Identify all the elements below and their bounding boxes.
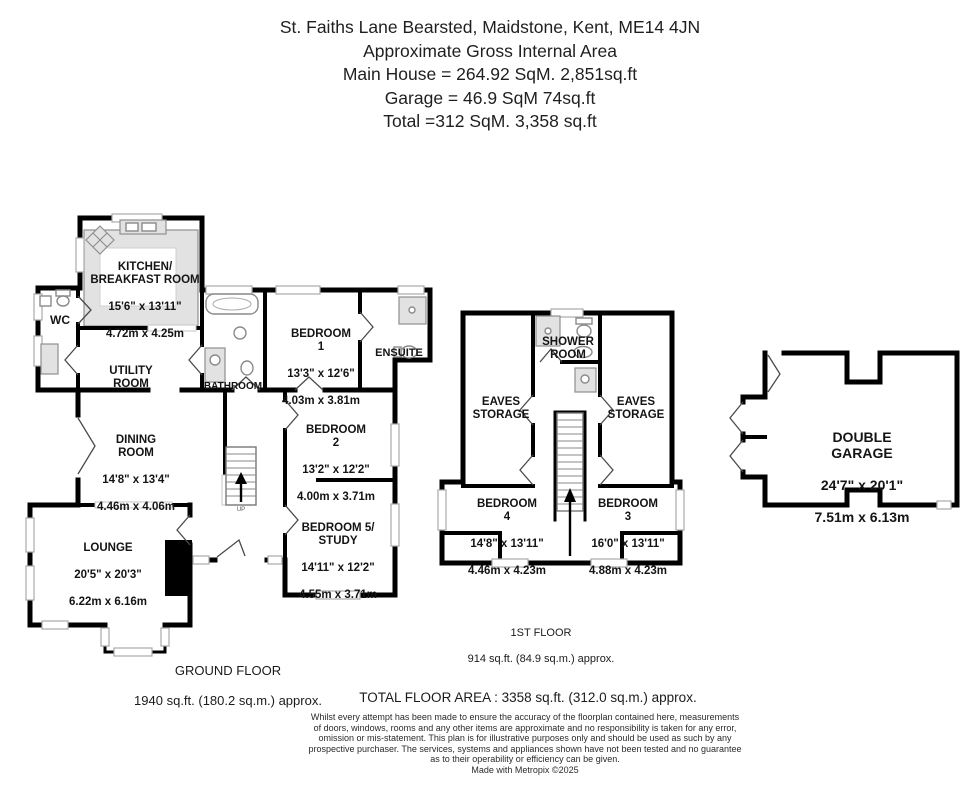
room-dims-metric: 6.22m x 6.16m bbox=[69, 596, 147, 610]
floor-name: 1ST FLOOR bbox=[468, 627, 615, 640]
room-name: UTILITY ROOM bbox=[109, 365, 152, 392]
room-label-utility: UTILITY ROOM bbox=[109, 351, 152, 405]
room-dims-metric: 4.03m x 3.81m bbox=[282, 395, 360, 409]
room-dims-imperial: 16'0" x 13'11" bbox=[589, 538, 667, 552]
room-label-eaves-storage-right: EAVES STORAGE bbox=[608, 382, 665, 436]
window bbox=[26, 518, 34, 552]
room-name: EAVES STORAGE bbox=[608, 396, 665, 423]
ground-stairs bbox=[226, 447, 256, 505]
window bbox=[193, 556, 209, 564]
room-dims-metric: 7.51m x 6.13m bbox=[803, 509, 921, 525]
room-name: LOUNGE bbox=[69, 542, 147, 556]
window bbox=[161, 628, 169, 646]
room-label-eaves-storage-left: EAVES STORAGE bbox=[473, 382, 530, 436]
room-label-bedroom2: BEDROOM 2 13'2" x 12'2" 4.00m x 3.71m bbox=[297, 410, 375, 518]
disclaimer: Whilst every attempt has been made to en… bbox=[285, 712, 765, 776]
room-label-bedroom5: BEDROOM 5/ STUDY 14'11" x 12'2" 4.55m x … bbox=[299, 508, 377, 616]
room-dims-imperial: 14'8" x 13'4" bbox=[97, 474, 175, 488]
room-label-wc: WC bbox=[50, 300, 70, 341]
room-name: DOUBLE GARAGE bbox=[803, 429, 921, 461]
bath-icon bbox=[206, 294, 258, 314]
floorplan-page: St. Faiths Lane Bearsted, Maidstone, Ken… bbox=[0, 0, 980, 803]
window bbox=[438, 490, 446, 530]
room-dims-metric: 4.55m x 3.71m bbox=[299, 589, 377, 603]
room-label-bathroom: BATHROOM bbox=[204, 366, 262, 407]
window bbox=[676, 490, 684, 530]
floor-area: 1940 sq.ft. (180.2 sq.m.) approx. bbox=[134, 693, 322, 708]
room-dims-imperial: 14'8" x 13'11" bbox=[468, 538, 546, 552]
room-dims-imperial: 13'2" x 12'2" bbox=[297, 464, 375, 478]
first-stairs bbox=[557, 413, 583, 556]
room-dims-metric: 4.00m x 3.71m bbox=[297, 491, 375, 505]
room-dims-imperial: 24'7" x 20'1" bbox=[803, 477, 921, 493]
room-label-bedroom1: BEDROOM 1 13'3" x 12'6" 4.03m x 3.81m bbox=[282, 314, 360, 422]
room-dims-imperial: 20'5" x 20'3" bbox=[69, 569, 147, 583]
window bbox=[268, 556, 282, 564]
room-name: KITCHEN/ BREAKFAST ROOM bbox=[90, 261, 199, 288]
shower-drain-icon bbox=[409, 307, 415, 313]
window bbox=[26, 566, 34, 600]
floor-area: 914 sq.ft. (84.9 sq.m.) approx. bbox=[468, 653, 615, 666]
floor-name: GROUND FLOOR bbox=[134, 663, 322, 678]
room-dims-metric: 4.72m x 4.25m bbox=[90, 328, 199, 342]
window bbox=[398, 286, 424, 294]
window bbox=[276, 286, 320, 294]
room-name: BEDROOM 2 bbox=[297, 424, 375, 451]
room-name: ENSUITE bbox=[375, 347, 423, 361]
total-floor-area: TOTAL FLOOR AREA : 3358 sq.ft. (312.0 sq… bbox=[359, 690, 696, 705]
window bbox=[206, 286, 252, 294]
room-name: WC bbox=[50, 314, 70, 328]
stairs-up-label: UP bbox=[237, 507, 245, 513]
sink-drainer-icon bbox=[142, 223, 156, 231]
room-label-double-garage: DOUBLE GARAGE 24'7" x 20'1" 7.51m x 6.13… bbox=[803, 413, 921, 541]
room-name: BATHROOM bbox=[204, 380, 262, 394]
room-dims-metric: 4.46m x 4.06m bbox=[97, 501, 175, 515]
cupboard-icon bbox=[41, 344, 58, 374]
basin-icon bbox=[581, 375, 589, 383]
room-label-lounge: LOUNGE 20'5" x 20'3" 6.22m x 6.16m bbox=[69, 528, 147, 623]
basin-icon bbox=[210, 355, 220, 365]
first-floor-caption: 1ST FLOOR 914 sq.ft. (84.9 sq.m.) approx… bbox=[468, 614, 615, 679]
window bbox=[937, 501, 951, 509]
room-dims-imperial: 15'6" x 13'11" bbox=[90, 301, 199, 315]
room-label-ensuite: ENSUITE bbox=[375, 333, 423, 374]
room-name: BEDROOM 5/ STUDY bbox=[299, 522, 377, 549]
door-swing bbox=[730, 355, 780, 472]
chimney bbox=[165, 540, 192, 596]
room-label-bedroom3: BEDROOM 3 16'0" x 13'11" 4.88m x 4.23m bbox=[589, 484, 667, 592]
room-name: DINING ROOM bbox=[97, 434, 175, 461]
window bbox=[391, 424, 399, 466]
sink-bowl-icon bbox=[126, 223, 138, 231]
room-label-bedroom4: BEDROOM 4 14'8" x 13'11" 4.46m x 4.23m bbox=[468, 484, 546, 592]
window bbox=[391, 504, 399, 546]
room-name: BEDROOM 4 bbox=[468, 498, 546, 525]
room-name: BEDROOM 3 bbox=[589, 498, 667, 525]
room-dims-metric: 4.88m x 4.23m bbox=[589, 565, 667, 579]
room-name: EAVES STORAGE bbox=[473, 396, 530, 423]
toilet-cistern-icon bbox=[56, 290, 70, 296]
window bbox=[101, 628, 109, 646]
room-label-kitchen: KITCHEN/ BREAKFAST ROOM 15'6" x 13'11" 4… bbox=[90, 247, 199, 355]
room-dims-metric: 4.46m x 4.23m bbox=[468, 565, 546, 579]
room-label-shower-room: SHOWER ROOM bbox=[542, 322, 594, 376]
window bbox=[76, 238, 84, 272]
room-name: BEDROOM 1 bbox=[282, 328, 360, 355]
window bbox=[42, 621, 68, 629]
room-name: SHOWER ROOM bbox=[542, 336, 594, 363]
room-dims-imperial: 14'11" x 12'2" bbox=[299, 562, 377, 576]
room-label-dining: DINING ROOM 14'8" x 13'4" 4.46m x 4.06m bbox=[97, 420, 175, 528]
room-dims-imperial: 13'3" x 12'6" bbox=[282, 368, 360, 382]
basin-icon bbox=[234, 327, 246, 339]
